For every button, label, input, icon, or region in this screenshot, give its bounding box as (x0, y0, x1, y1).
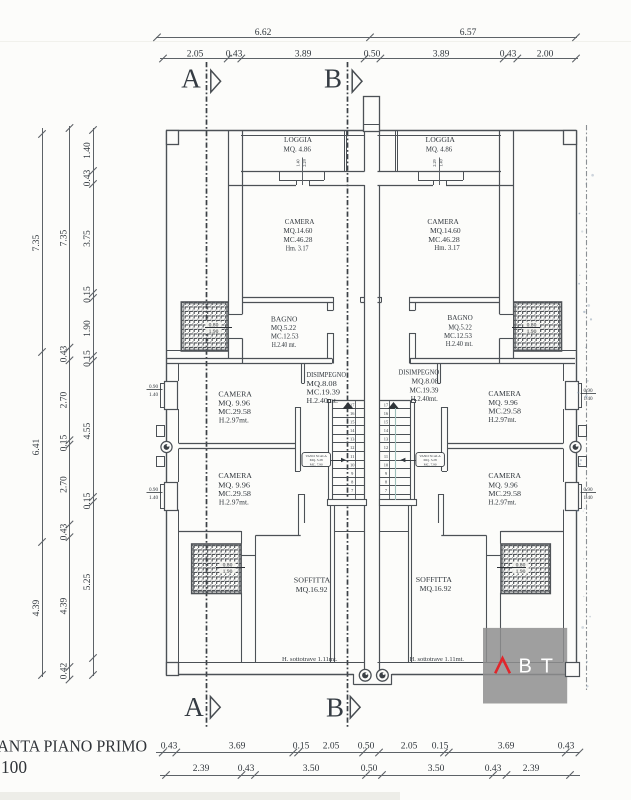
svg-text:0.50: 0.50 (364, 50, 381, 60)
svg-text:H.2.97mt.: H.2.97mt. (488, 499, 516, 507)
svg-text:H. sottotrave 1.11mt.: H. sottotrave 1.11mt. (282, 656, 338, 663)
svg-text:0.43: 0.43 (226, 50, 243, 60)
svg-text:1.40: 1.40 (583, 495, 592, 501)
svg-text:H.2.40 mt.: H.2.40 mt. (446, 340, 473, 348)
svg-text:0.43: 0.43 (558, 742, 575, 752)
svg-text:MQ.14.60: MQ.14.60 (430, 226, 461, 235)
svg-text:MQ.8.08: MQ.8.08 (307, 379, 338, 388)
svg-text:1.40: 1.40 (583, 396, 592, 402)
svg-text:3.89: 3.89 (433, 50, 450, 60)
svg-text:0.15: 0.15 (60, 434, 70, 451)
svg-text:MC.29.58: MC.29.58 (218, 489, 251, 498)
svg-text:CAMERA: CAMERA (218, 471, 252, 480)
svg-text:B: B (324, 64, 342, 94)
svg-text:1.90: 1.90 (223, 569, 233, 575)
svg-text:4.55: 4.55 (83, 422, 93, 439)
svg-text:1.40: 1.40 (296, 159, 301, 166)
svg-text:2.05: 2.05 (323, 742, 340, 752)
svg-text:11: 11 (384, 454, 388, 459)
svg-text:SOFFITTA: SOFFITTA (294, 575, 331, 584)
svg-text:MQ.16.92: MQ.16.92 (296, 585, 328, 594)
svg-text:MC.29.58: MC.29.58 (218, 407, 251, 416)
svg-text:MC.29.58: MC.29.58 (488, 407, 521, 416)
svg-text:2.29: 2.29 (432, 159, 437, 166)
svg-text:MC.12.53: MC.12.53 (271, 331, 299, 340)
svg-text:SOFFITTA: SOFFITTA (416, 575, 453, 584)
svg-text:MC.46.28: MC.46.28 (284, 235, 313, 244)
svg-text:MQ. 3.28: MQ. 3.28 (310, 458, 323, 462)
svg-text:0.50: 0.50 (358, 742, 375, 752)
svg-text:MQ. 9.96: MQ. 9.96 (488, 398, 517, 407)
svg-text:0.43: 0.43 (83, 169, 93, 186)
svg-text:2.70: 2.70 (60, 476, 70, 493)
svg-text:B: B (519, 656, 532, 678)
svg-text:1.40: 1.40 (149, 392, 158, 398)
svg-text:2.05: 2.05 (401, 742, 418, 752)
svg-text:3.50: 3.50 (428, 764, 445, 774)
svg-text:H. sottotrave 1.11mt.: H. sottotrave 1.11mt. (410, 656, 465, 663)
svg-text:MQ. 9.96: MQ. 9.96 (488, 480, 517, 489)
svg-text:MC.19.39: MC.19.39 (410, 385, 439, 394)
svg-text:4.39: 4.39 (32, 599, 42, 616)
svg-text:CAMERA: CAMERA (488, 471, 521, 480)
svg-text:1.90: 1.90 (527, 329, 537, 335)
svg-text:CAMERA: CAMERA (285, 217, 315, 226)
svg-text:4.39: 4.39 (60, 597, 70, 614)
svg-text:LOGGIA: LOGGIA (284, 135, 312, 144)
svg-text:LOGGIA: LOGGIA (426, 135, 456, 144)
svg-text:5.25: 5.25 (83, 573, 93, 590)
svg-text:12: 12 (384, 445, 388, 450)
svg-text:MQ. 4.86: MQ. 4.86 (284, 144, 312, 153)
svg-text:BAGNO: BAGNO (448, 313, 474, 322)
svg-text:MQ.14.60: MQ.14.60 (284, 226, 313, 235)
svg-text:DISIMPEGNO: DISIMPEGNO (399, 368, 440, 377)
svg-text:CAMERA: CAMERA (488, 389, 521, 398)
svg-text:MC. 7.90: MC. 7.90 (310, 463, 323, 467)
svg-text:2.05: 2.05 (187, 50, 204, 60)
svg-text:VANO SCALA: VANO SCALA (419, 454, 441, 458)
svg-text:H.2.40 mt.: H.2.40 mt. (272, 341, 297, 349)
svg-text:6.41: 6.41 (32, 438, 42, 455)
svg-text:7.35: 7.35 (60, 229, 70, 246)
svg-text:11: 11 (350, 454, 354, 459)
svg-text:0.15: 0.15 (83, 350, 93, 367)
svg-text:T: T (541, 656, 553, 678)
svg-text:H.2.40mt.: H.2.40mt. (411, 395, 438, 403)
svg-text:3.89: 3.89 (295, 50, 312, 60)
svg-text:H.2.40mt.: H.2.40mt. (307, 397, 339, 405)
svg-text:1.40: 1.40 (438, 159, 443, 166)
svg-text:MC.19.39: MC.19.39 (307, 388, 341, 397)
svg-text:H.2.97mt.: H.2.97mt. (219, 499, 249, 507)
svg-text:MC.29.58: MC.29.58 (488, 489, 521, 498)
svg-text:0.43: 0.43 (161, 742, 178, 752)
svg-text:2.00: 2.00 (537, 50, 554, 60)
svg-text:H.2.97mt.: H.2.97mt. (488, 416, 516, 424)
svg-text:0.15: 0.15 (432, 742, 449, 752)
svg-text:PIANTA PIANO PRIMO: PIANTA PIANO PRIMO (0, 737, 147, 756)
svg-text:0.43: 0.43 (485, 764, 502, 774)
svg-text:12: 12 (350, 445, 354, 450)
svg-text:0.43: 0.43 (60, 345, 70, 362)
svg-text:2.70: 2.70 (60, 391, 70, 408)
svg-text:A: A (184, 692, 204, 722)
svg-text:0.42: 0.42 (60, 662, 70, 679)
svg-text:1.40: 1.40 (83, 142, 93, 159)
svg-text:MQ.8.08: MQ.8.08 (412, 377, 439, 386)
svg-text:2.39: 2.39 (193, 764, 210, 774)
svg-text:0.43: 0.43 (500, 50, 517, 60)
svg-text:3.69: 3.69 (498, 742, 515, 752)
svg-text:MQ. 4.86: MQ. 4.86 (426, 144, 452, 153)
svg-text:H.2.97mt.: H.2.97mt. (219, 416, 249, 424)
svg-text:3.75: 3.75 (83, 230, 93, 247)
svg-text:1.90: 1.90 (516, 569, 526, 575)
svg-text:MC. 7.90: MC. 7.90 (424, 463, 437, 467)
svg-text:0.15: 0.15 (83, 286, 93, 303)
svg-text:1.90: 1.90 (83, 320, 93, 337)
svg-text:7.35: 7.35 (32, 234, 42, 251)
svg-text:CAMERA: CAMERA (218, 390, 252, 399)
svg-text:MC.46.28: MC.46.28 (428, 235, 460, 244)
svg-text:1.90: 1.90 (209, 329, 219, 335)
svg-text:MQ.16.92: MQ.16.92 (420, 584, 452, 593)
svg-text:0.43: 0.43 (60, 523, 70, 540)
svg-text:3.69: 3.69 (229, 742, 246, 752)
svg-text:VANO SCALA: VANO SCALA (306, 454, 328, 458)
svg-text:3.50: 3.50 (303, 764, 320, 774)
svg-text:6.57: 6.57 (460, 28, 477, 38)
svg-text:CAMERA: CAMERA (427, 217, 459, 226)
svg-text:DISIMPEGNO: DISIMPEGNO (307, 370, 347, 379)
svg-text:2.39: 2.39 (523, 764, 540, 774)
svg-text:MC.12.53: MC.12.53 (444, 331, 472, 340)
svg-text:Hm. 3.17: Hm. 3.17 (286, 244, 309, 252)
svg-text:Hm. 3.17: Hm. 3.17 (434, 244, 460, 252)
svg-text:MQ. 9.96: MQ. 9.96 (218, 480, 250, 489)
svg-text:6.62: 6.62 (255, 28, 272, 38)
svg-text:0.43: 0.43 (238, 764, 255, 774)
svg-text:B: B (326, 693, 344, 723)
svg-text:2.29: 2.29 (302, 159, 307, 166)
svg-text:0.50: 0.50 (361, 764, 378, 774)
svg-text:100: 100 (1, 757, 27, 777)
svg-text:0.15: 0.15 (293, 742, 310, 752)
svg-text:0.15: 0.15 (83, 492, 93, 509)
svg-text:A: A (181, 64, 201, 94)
svg-text:MQ. 3.28: MQ. 3.28 (424, 458, 437, 462)
svg-text:1.40: 1.40 (149, 495, 158, 501)
